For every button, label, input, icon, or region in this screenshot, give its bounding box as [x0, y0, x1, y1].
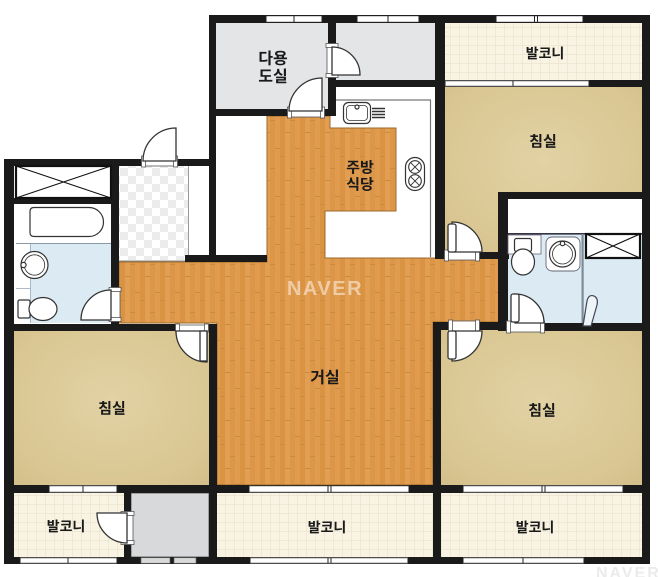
svg-text:NAVER: NAVER [287, 278, 363, 300]
svg-text:NAVER: NAVER [596, 565, 658, 577]
